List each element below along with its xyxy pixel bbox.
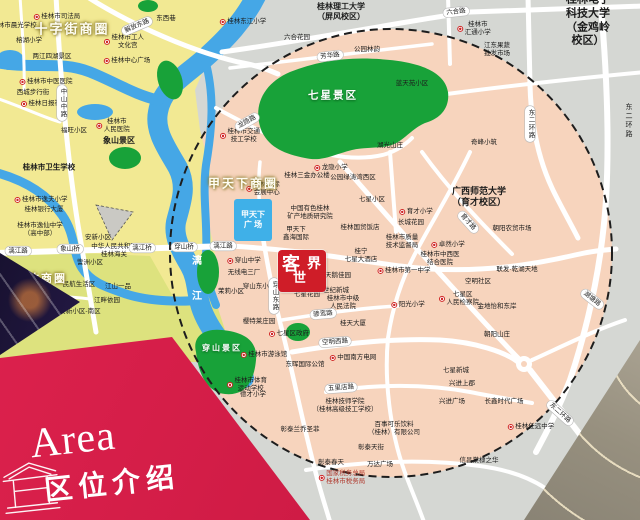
map-label: 桂林三金办公楼 [284,172,330,180]
road-label-text: 漓江路 [8,248,28,255]
map-label: 长鑫时代广场 [485,398,524,406]
road-label: 漓江路 [210,242,236,251]
poi-marker-icon [104,39,110,45]
map-label: 联发·乾湖天地 [496,266,537,274]
poi-marker-icon [431,242,437,248]
map-label-text: 桂林国贸饭店 [341,224,380,232]
poi-marker-icon [269,331,275,337]
map-label: 万达广场 [367,461,393,469]
map-label: 无线电三厂 [228,269,261,277]
map-label: 江山一品 [105,283,131,291]
map-label: 桂林市游泳馆 [241,351,288,359]
poi-marker-icon [399,209,405,215]
poi-marker-icon [508,424,514,430]
map-label-text: 长城花园 [398,219,424,227]
map-label-text: 德才小学 [240,391,266,399]
map-label: 福旺小区 [61,127,87,135]
map-label-text: 东晖国际公馆 [286,361,325,369]
poi-marker-icon [227,258,233,264]
poi-marker-icon [220,19,226,25]
road-label: 骖鸾路 [310,308,336,319]
map-label-text: 联发·乾湖天地 [496,266,537,274]
map-label-text: 桂林市 汇通小学 [465,21,491,37]
map-label-text: 彰泰春天 [318,459,344,467]
map-label-text: 桂林银行大厦 [25,206,64,214]
logo-char-3: 界 [307,253,321,273]
map-label: 兴进上郡 [449,380,475,388]
map-label-text: 榕湖小学 [16,37,42,45]
map-label: 龙隐小学 [314,164,348,172]
map-label: 信昌棠棣之华 [460,457,499,465]
road-label-text: 骖鸾路 [313,310,333,319]
map-label-text: 七星区政府 [277,330,310,338]
road-label: 中山中路 [57,85,67,121]
map-label-text: 甲天下 鑫海国际 [283,226,309,242]
poi-marker-icon [21,101,27,107]
map-label-text: 七星花园 [294,291,320,299]
poi-marker-icon [104,58,110,64]
map-label-text: 兴进上郡 [449,380,475,388]
map-label: 东西巷 [156,15,176,23]
map-label: 中国南方电网 [330,354,377,362]
map-label: 卓然小学 [431,241,465,249]
map-label-text: 桂林市 人民医院 [104,118,130,134]
map-label: 朝阳农贸市场 [493,225,532,233]
map-label-text: 桂林市第一中学 [385,267,431,275]
road-label-text: 解放东路 [124,18,151,35]
map-label-text: 公园林韵 [354,46,380,54]
map-label: 穿山中学 [227,257,261,265]
map-label-text: 百事可乐饮料 （桂林）有限公司 [368,421,420,437]
map-label-text: 东西巷 [156,15,176,23]
map-label-text: 象山景区 [103,136,135,146]
map-label: 公园林韵 [354,46,380,54]
location-map-poster: 桂林市司法局桂林市晨光学校东西巷桂林市工人 文化宫桂林中心广场榕湖小学两江四湖景… [0,0,640,520]
map-label: 七星花园 [294,291,320,299]
map-label: 漓 [192,256,202,269]
map-label-text: 桂林市卫生学校 [23,162,76,171]
map-label: 空明社区 [465,278,491,286]
park-label-text: 穿山景区 [202,344,242,353]
map-label-text: 育才小学 [407,208,433,216]
map-label-text: 漓 [192,256,202,269]
map-label: 象山景区 [103,136,135,146]
map-label: 天鹅佳园 [325,272,351,280]
map-label-text: 公园绿涛湾西区 [330,174,376,182]
map-label: 兴进广场 [439,398,465,406]
road-label-text: 中山中路 [59,88,66,118]
map-label-text: 七星区 人民检察院 [447,291,480,307]
map-label: 江畔依园 [94,297,120,305]
map-label: 德才小学 [240,391,266,399]
road-label-text: 东二环路 [548,402,572,425]
map-label: 世纪新城 [323,287,349,295]
map-label: 长城花园 [398,219,424,227]
logo-char-2: 世 [293,267,306,286]
map-label: 育才小学 [399,208,433,216]
map-label: 榕湖小学 [16,37,42,45]
business-circle-label: 十字街商圈 [34,19,109,38]
map-label: 彰泰春天 [318,459,344,467]
map-label: 桂林日报社 [21,100,61,108]
road-label-text: 空明西路 [322,338,348,347]
map-label-text: 奇峰小筑 [471,139,497,147]
road-label-text: 漓江路 [213,243,233,250]
map-label: 百事可乐饮料 （桂林）有限公司 [368,421,420,437]
jiatianxia-plaza-block: 甲天下 广 场 [234,199,272,241]
map-label-text: 中国有色桂林 矿产地质研究院 [287,205,333,221]
map-label-text: 长鑫时代广场 [485,398,524,406]
map-label: 桂林市中西医 结合医院 [421,251,460,267]
map-label-text: 福旺小区 [61,127,87,135]
project-logo: 客 世 界 [278,250,326,292]
map-label: 中国有色桂林 矿产地质研究院 [287,205,333,221]
business-circle-label-text: 联达商圈 [15,273,67,285]
map-label: 桂林市逸夫小学 [15,196,68,204]
map-label: 桂林东江小学 [220,18,267,26]
map-label-text: 茉莉小区 [218,288,244,296]
map-label: 桂林市第一中学 [378,267,431,275]
road-name-text: 东二环路 [625,103,632,139]
road-label: 育才路 [456,210,480,235]
map-label-text: 桂林中心广场 [111,57,150,65]
road-label: 六合路 [443,6,469,18]
poi-marker-icon [457,26,463,32]
map-label-text: 桂林市中西医 结合医院 [421,251,460,267]
map-label-text: 无线电三厂 [228,269,261,277]
road-label-text: 象山桥 [60,246,80,253]
map-label: 桂林银行大厦 [25,206,64,214]
map-label-text: 桂林三金办公楼 [284,172,330,180]
road-label-text: 漓江桥 [132,245,152,252]
map-label: 七星区 人民检察院 [439,291,479,307]
park-label: 穿山景区 [202,343,242,354]
map-label-text: 两江四湖景区 [33,53,72,61]
map-label-text: 民航生活区 [63,281,96,289]
map-label: 朝阳山庄 [484,331,510,339]
road-label: 芳华路 [317,50,343,62]
map-label-text: 桂林市逸夫小学 [22,196,68,204]
map-label: 桂林任远中学 [508,423,555,431]
map-label: 甲天下 鑫海国际 [283,226,309,242]
road-label: 象山桥 [57,245,83,254]
map-label-text: 桂林市逸仙中学 （高中部） [17,222,63,238]
road-label: 空明西路 [319,336,352,347]
map-label: 桂林市 汇通小学 [457,21,491,37]
map-label-text: 桂林市中医医院 [27,78,73,86]
poi-marker-icon [220,133,226,139]
map-label: 彰泰兰乔圣菲 [281,426,320,434]
map-label: 安新小区 [85,234,111,242]
business-circle-label: 甲天下商圈 [208,175,278,192]
map-label-text: 訾洲小区 [77,259,103,267]
map-label: 桂宁 七星大酒店 [345,248,378,264]
poi-marker-icon [15,197,21,203]
map-label: 公园绿涛湾西区 [330,174,376,182]
map-label-text: 湖光山庄 [377,142,403,150]
map-label-text: 世纪新城 [323,287,349,295]
map-label: 江 [192,291,202,304]
map-label-text: 桂林技师学院 （桂林高级技工学校） [313,398,378,414]
map-label: 七星新城 [443,367,469,375]
poi-marker-icon [439,296,445,302]
map-label: 桂林国贸饭店 [341,224,380,232]
map-label-text: 樱特莱庄园 [243,318,276,326]
map-label: 桂林市质量 技术监督局 [386,234,419,250]
poi-marker-icon [227,382,233,388]
poi-marker-icon [314,165,320,171]
map-label-text: 桂林理工大学 （屏风校区） [317,2,365,22]
map-label-text: 穿山中学 [235,257,261,265]
map-label-text: 万达广场 [367,461,393,469]
map-label: 江东果蔬 批发市场 [484,42,510,58]
banner-title-en: Area [28,412,118,469]
road-label-text: 六合路 [446,8,466,17]
map-label-text: 蓝天苑小区 [396,80,429,88]
map-label-text: 桂林市游泳馆 [248,351,287,359]
map-label: 桂林中心广场 [104,57,151,65]
map-label-text: 安新小区-南区 [59,308,100,316]
map-label-text: 江 [192,291,202,304]
map-label: 蓝天苑小区 [396,80,429,88]
map-label-text: 桂林任远中学 [515,423,554,431]
park-label-text: 七星景区 [308,90,358,102]
poi-marker-icon [20,79,26,85]
map-label-text: 天鹅佳园 [325,272,351,280]
map-label-text: 彰泰天街 [358,444,384,452]
map-label-text: 桂林市工人 文化宫 [112,34,145,50]
map-label-text: 六合花园 [284,34,310,42]
map-label-text: 朝阳农贸市场 [493,225,532,233]
map-label: 彰泰天街 [358,444,384,452]
road-label-text: 东二环路 [527,109,534,139]
map-label-text: 桂天大厦 [340,320,366,328]
map-label: 桂林市卫生学校 [23,162,76,171]
map-label-text: 桂林市质量 技术监督局 [386,234,419,250]
map-label: 西城步行街 [17,89,50,97]
poi-marker-icon [319,475,325,481]
map-label-text: 金地怡和东岸 [478,303,517,311]
map-label: 奇峰小筑 [471,139,497,147]
map-label-text: 西城步行街 [17,89,50,97]
map-label-text: 广西师范大学 （育才校区） [452,186,506,209]
map-label: 安新小区-南区 [59,308,100,316]
map-label-text: 国家税务总局 桂林市税务局 [326,470,365,486]
map-label-text: 空明社区 [465,278,491,286]
map-label: 桂林市晨光学校 [0,22,37,30]
poi-marker-icon [391,302,397,308]
map-label-text: 龙隐小学 [322,164,348,172]
map-label: 桂林理工大学 （屏风校区） [317,2,365,22]
map-label: 桂林市工人 文化宫 [104,34,144,50]
map-label-text: 安新小区 [85,234,111,242]
road-label: 漓江路 [5,247,31,256]
road-name: 东二环路 [623,103,633,139]
map-label-text: 卓然小学 [439,241,465,249]
map-label: 两江四湖景区 [33,53,72,61]
map-label-text: 七星新城 [443,367,469,375]
map-label: 湖光山庄 [377,142,403,150]
road-label: 五里店路 [325,382,358,393]
road-label-text: 穿山桥 [174,244,194,251]
map-label: 金地怡和东岸 [478,303,517,311]
map-label-text: 彰泰兰乔圣菲 [281,426,320,434]
map-label: 东晖国际公馆 [286,361,325,369]
map-label-text: 兴进广场 [439,398,465,406]
map-label: 桂林市 人民医院 [96,118,130,134]
map-label-text: 桂林电子科技大学 （金鸡岭校区） [562,0,614,49]
map-label: 国家税务总局 桂林市税务局 [319,470,366,486]
map-label: 桂林电子科技大学 （金鸡岭校区） [562,0,614,49]
map-label-text: 桂林市晨光学校 [0,22,37,30]
map-label: 訾洲小区 [77,259,103,267]
map-label: 广西师范大学 （育才校区） [452,186,506,209]
business-circle-label-text: 甲天下商圈 [208,177,278,191]
road-label-text: 穿山东路 [271,281,278,311]
map-label: 桂林技师学院 （桂林高级技工学校） [313,398,378,414]
map-label-text: 信昌棠棣之华 [460,457,499,465]
road-label: 穿山桥 [171,243,197,252]
map-label-text: 中国南方电网 [337,354,376,362]
road-label-text: 芳华路 [320,51,340,60]
poi-marker-icon [96,123,102,129]
business-circle-label: 联达商圈 [15,270,67,286]
map-label-text: 江东果蔬 批发市场 [484,42,510,58]
map-label: 阳光小学 [391,301,425,309]
map-label: 七星小区 [359,196,385,204]
map-label: 桂天大厦 [340,320,366,328]
map-label: 民航生活区 [63,281,96,289]
road-label-text: 湖塘路 [582,290,602,308]
map-label-text: 江山一品 [105,283,131,291]
map-label-text: 桂林市交通 技工学校 [228,128,261,144]
map-label-text: 阳光小学 [399,301,425,309]
road-label: 东二环路 [525,106,535,142]
road-label: 湖塘路 [579,288,605,311]
map-label-text: 朝阳山庄 [484,331,510,339]
park-label: 七星景区 [308,88,358,103]
map-label: 茉莉小区 [218,288,244,296]
map-label-text: 七星小区 [359,196,385,204]
map-label: 樱特莱庄园 [243,318,276,326]
map-label: 六合花园 [284,34,310,42]
road-label-text: 五里店路 [328,384,354,393]
map-label: 七星区政府 [269,330,309,338]
business-circle-label-text: 十字街商圈 [34,22,109,37]
map-label-text: 江畔依园 [94,297,120,305]
map-label: 桂林市逸仙中学 （高中部） [17,222,63,238]
road-label: 漓江桥 [129,244,155,253]
map-label-text: 桂宁 七星大酒店 [345,248,378,264]
road-label-text: 育才路 [459,212,477,231]
map-label-text: 桂林东江小学 [227,18,266,26]
poi-marker-icon [330,355,336,361]
poi-marker-icon [378,268,384,274]
